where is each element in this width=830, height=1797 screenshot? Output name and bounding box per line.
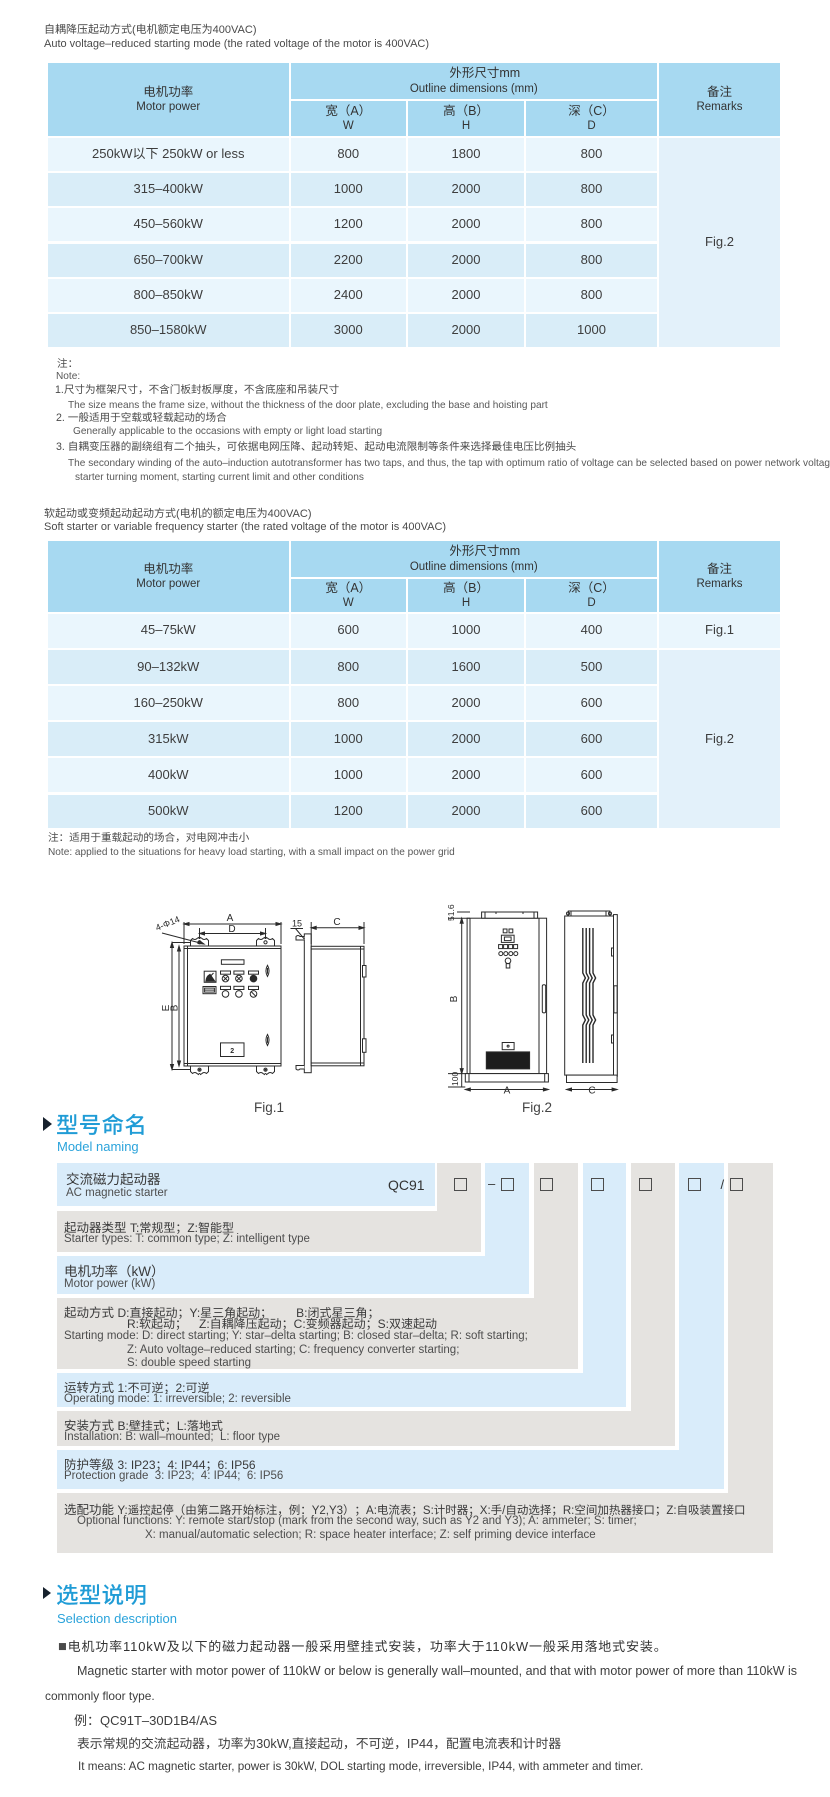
svg-text:B: B: [170, 1004, 181, 1011]
svg-text:C: C: [333, 917, 340, 928]
svg-text:100: 100: [450, 1072, 460, 1086]
svg-text:A: A: [227, 913, 234, 924]
svg-text:15: 15: [292, 919, 302, 929]
svg-text:D: D: [228, 924, 235, 935]
svg-text:B: B: [449, 995, 460, 1002]
svg-text:4-Φ14: 4-Φ14: [154, 914, 181, 933]
svg-text:A: A: [504, 1086, 511, 1096]
svg-text:C: C: [588, 1086, 595, 1096]
svg-text:2: 2: [230, 1048, 234, 1055]
